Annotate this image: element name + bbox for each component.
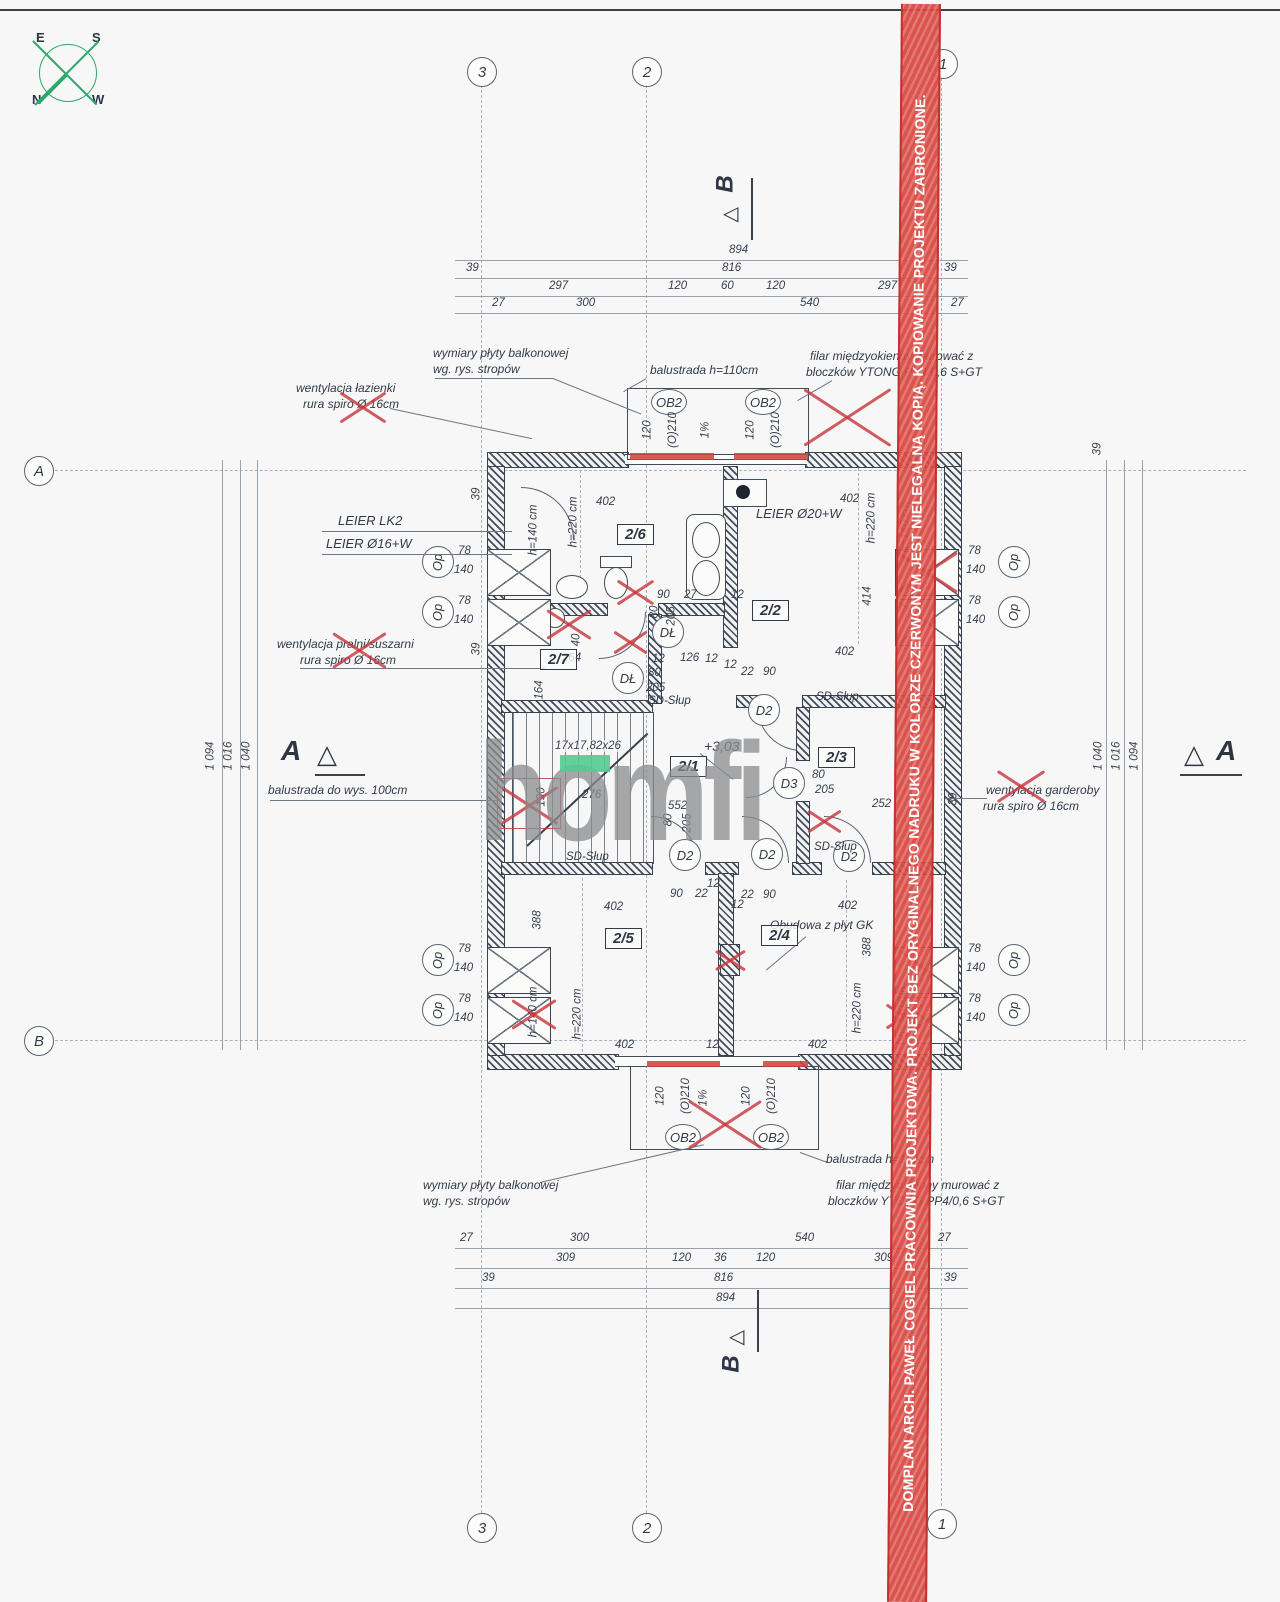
room-number: 2/6	[625, 526, 646, 543]
balcony-slope: 1%	[699, 422, 711, 439]
dim-line	[1124, 460, 1125, 1050]
op-label: Op	[1007, 603, 1022, 620]
op-bubble: Op	[422, 596, 454, 628]
door-type: D3	[781, 776, 798, 791]
dim-120: 120	[672, 1252, 691, 1264]
grid-b-label: B	[34, 1033, 44, 1050]
room-label-2-6: 2/6	[617, 524, 654, 545]
wall-bottom-left	[487, 1054, 619, 1070]
sd-slup-label: SD-Słup	[816, 690, 859, 705]
dim-h220: h=220 cm	[567, 497, 579, 548]
dim-39: 39	[470, 643, 482, 656]
red-x-vent-wardrobe	[995, 762, 1047, 808]
op-bubble: Op	[998, 944, 1030, 976]
page-edge-line	[0, 9, 1280, 11]
win-dim-78: 78	[968, 943, 981, 955]
leader	[540, 1144, 704, 1183]
dim-205: 205	[666, 606, 678, 625]
section-triangle-b-bottom: ◁	[729, 1324, 744, 1348]
ann-balcony-plate-top-1: wymiary płyty balkonowej	[433, 346, 568, 362]
room-label-2-3: 2/3	[818, 747, 855, 768]
dim-402: 402	[835, 646, 854, 658]
red-x-balcony-bottom	[685, 1076, 765, 1170]
room-number: 2/4	[769, 927, 790, 944]
dim-39: 39	[466, 262, 479, 274]
win-dim-140: 140	[454, 962, 473, 974]
section-letter-a-right: A	[1216, 735, 1236, 767]
red-x-balcony-top	[800, 385, 895, 447]
bathtub-basin	[692, 522, 720, 558]
grid-axis-b	[50, 1040, 1246, 1041]
balcony-dim-210: (O)210	[766, 1078, 778, 1114]
dim-894: 894	[729, 244, 748, 256]
dim-12: 12	[707, 878, 720, 890]
grid-bubble-3-bottom: 3	[467, 1513, 497, 1543]
grid-bubble-2-bottom: 2	[632, 1513, 662, 1543]
win-dim-78: 78	[458, 993, 471, 1005]
homfi-logo-text: homfi	[478, 713, 762, 870]
dim-402: 402	[615, 1039, 634, 1051]
op-bubble: Op	[422, 546, 454, 578]
dim-line	[257, 460, 258, 1050]
room-label-2-4: 2/4	[761, 925, 798, 946]
win-dim-78: 78	[968, 545, 981, 557]
grid-bubble-3-top: 3	[467, 57, 497, 87]
dim-39: 39	[470, 488, 482, 501]
section-line-b-top	[751, 178, 753, 240]
op-bubble: Op	[998, 596, 1030, 628]
win-dim-78: 78	[458, 545, 471, 557]
dim-388: 388	[532, 910, 544, 929]
win-dim-140: 140	[966, 614, 985, 626]
grid-bubble-b: B	[24, 1026, 54, 1056]
ob2-label: OB2	[750, 395, 776, 410]
dim-297: 297	[549, 280, 568, 292]
win-dim-140: 140	[966, 1012, 985, 1024]
balcony-dim-210: (O)210	[770, 412, 782, 448]
ann-balcony-plate-bottom-1: wymiary płyty balkonowej	[423, 1178, 558, 1194]
homfi-logo-roof-icon	[560, 755, 610, 772]
red-x-sink	[545, 605, 593, 641]
dim-12: 12	[724, 659, 737, 671]
win-dim-78: 78	[968, 595, 981, 607]
sd-slup-label: SD-Słup	[648, 694, 691, 709]
homfi-logo: homfi	[478, 722, 762, 862]
leader	[270, 800, 500, 801]
dim-205: 205	[646, 682, 665, 694]
dim-120: 120	[756, 1252, 775, 1264]
ann-leier-lk2: LEIER LK2	[338, 513, 402, 530]
leader	[390, 408, 532, 439]
dim-164: 164	[534, 680, 546, 699]
dim-388: 388	[862, 937, 874, 956]
grid-a-label: A	[34, 463, 44, 480]
ann-filar-top-1: filar międzyokienny murować z	[810, 349, 973, 365]
red-x-fixture-2	[612, 628, 648, 654]
dim-402: 402	[838, 900, 857, 912]
room-label-2-7: 2/7	[540, 649, 577, 670]
op-label: Op	[431, 553, 446, 570]
balcony-dim-120: 120	[642, 420, 654, 439]
section-triangle-a-left: △	[317, 740, 337, 770]
dim-1094: 1 094	[1128, 742, 1140, 771]
dim-line	[1106, 460, 1107, 1050]
grid-bubble-2-top: 2	[632, 57, 662, 87]
win-dim-140: 140	[454, 1012, 473, 1024]
grid-bubble-1-bottom: 1	[927, 1509, 957, 1539]
dim-12: 12	[705, 653, 718, 665]
red-x-gk-pillar	[714, 940, 746, 978]
window	[487, 599, 551, 646]
dim-402: 402	[808, 1039, 827, 1051]
dim-90: 90	[763, 889, 776, 901]
dim-line	[1142, 460, 1143, 1050]
op-label: Op	[431, 951, 446, 968]
leader	[800, 1152, 829, 1163]
dim-309: 309	[556, 1252, 575, 1264]
dim-line	[455, 278, 968, 279]
door-type: DŁ	[660, 625, 677, 640]
leader	[322, 531, 512, 532]
window	[487, 549, 551, 596]
dim-90: 90	[670, 888, 683, 900]
red-x-fixture-1	[616, 576, 656, 606]
red-x-vent-laundry	[330, 625, 388, 673]
dim-39: 39	[944, 1272, 957, 1284]
ann-balcony-plate-bottom-2: wg. rys. stropów	[423, 1194, 510, 1210]
section-line-b-bottom	[757, 1290, 759, 1352]
room-label-2-5: 2/5	[605, 928, 642, 949]
dim-39: 39	[947, 793, 959, 806]
dim-h220: h=220 cm	[851, 983, 863, 1034]
grid-bubble-a: A	[24, 456, 54, 486]
win-dim-140: 140	[454, 564, 473, 576]
op-bubble: Op	[422, 994, 454, 1026]
door-bubble-dl: DŁ	[612, 662, 644, 694]
red-x-sd-slup	[806, 806, 842, 834]
win-dim-140: 140	[966, 962, 985, 974]
grid-2-label: 2	[643, 64, 651, 81]
ob2-label: OB2	[656, 395, 682, 410]
balcony-dim-120: 120	[745, 420, 757, 439]
dim-h220: h=220 cm	[865, 493, 877, 544]
ann-balustrade-top: balustrada h=110cm	[650, 363, 758, 379]
op-label: Op	[431, 603, 446, 620]
dim-27: 27	[951, 297, 964, 309]
room-number: 2/2	[760, 602, 781, 619]
dim-12: 12	[652, 653, 665, 665]
dim-1094: 1 094	[204, 742, 216, 771]
dim-816: 816	[722, 262, 741, 274]
dim-402: 402	[604, 901, 623, 913]
dim-39: 39	[944, 262, 957, 274]
room-number: 2/5	[613, 930, 634, 947]
wall-top-right	[805, 452, 962, 468]
door-bubble-d3: D3	[773, 767, 805, 799]
section-letter-b-top: B	[712, 175, 740, 192]
red-highlight-bar	[647, 1061, 720, 1067]
section-underline-a-right	[1180, 774, 1242, 776]
ann-balcony-plate-top-2: wg. rys. stropów	[433, 362, 520, 378]
dim-12: 12	[731, 589, 744, 601]
grid-1-label: 1	[938, 1516, 946, 1533]
win-dim-140: 140	[966, 564, 985, 576]
copyright-watermark-text: DOMPLAN ARCH. PAWEŁ COGIEL PRACOWNIA PRO…	[900, 94, 928, 1512]
dim-22: 22	[695, 888, 708, 900]
win-dim-78: 78	[458, 943, 471, 955]
dim-300: 300	[576, 297, 595, 309]
washbasin	[556, 575, 588, 599]
door-type: DŁ	[620, 671, 637, 686]
dim-22: 22	[741, 666, 754, 678]
dim-120: 120	[668, 280, 687, 292]
dim-816: 816	[714, 1272, 733, 1284]
dim-90: 90	[657, 589, 670, 601]
op-label: Op	[1007, 553, 1022, 570]
dim-1016: 1 016	[222, 742, 234, 771]
room-number: 2/3	[826, 749, 847, 766]
dim-27: 27	[684, 589, 697, 601]
section-triangle-b-top: ◁	[723, 201, 738, 225]
wall-top-left	[487, 452, 629, 468]
dim-414: 414	[862, 586, 874, 605]
compass-rose-icon: E S N W	[20, 20, 140, 130]
op-bubble: Op	[998, 994, 1030, 1026]
balcony-dim-120: 120	[655, 1086, 667, 1105]
dim-1040: 1 040	[1092, 742, 1104, 771]
balcony-dim-210: (O)210	[667, 412, 679, 448]
dim-12: 12	[731, 899, 744, 911]
grid-axis-1	[941, 78, 942, 1506]
op-bubble: Op	[998, 546, 1030, 578]
dim-h140: h=140 cm	[527, 505, 539, 556]
compass-e-label: E	[36, 30, 45, 45]
win-dim-140: 140	[454, 614, 473, 626]
dim-540: 540	[795, 1232, 814, 1244]
section-underline-a-left	[315, 774, 365, 776]
dim-27: 27	[938, 1232, 951, 1244]
wall-bottom-right	[798, 1054, 962, 1070]
win-dim-78: 78	[968, 993, 981, 1005]
win-dim-78: 78	[458, 595, 471, 607]
section-letter-a-left: A	[281, 735, 301, 767]
dim-39: 39	[482, 1272, 495, 1284]
dim-540: 540	[800, 297, 819, 309]
dim-line	[455, 313, 968, 314]
dim-1040: 1 040	[240, 742, 252, 771]
dim-80: 80	[648, 667, 661, 679]
ann-filar-top-2: bloczków YTONG PP4/0,6 S+GT	[806, 365, 982, 381]
op-label: Op	[1007, 951, 1022, 968]
dim-39: 39	[1091, 443, 1103, 456]
ann-balustrade-100: balustrada do wys. 100cm	[268, 783, 407, 799]
section-letter-b-bottom: B	[718, 1355, 746, 1372]
grid-3-label: 3	[478, 1520, 486, 1537]
floor-plan-scan: E S N W 3 2 1 3 2 1 A B 894 39 816 39 29…	[0, 0, 1280, 1602]
dim-126: 126	[680, 652, 699, 664]
dim-402: 402	[840, 493, 859, 505]
dim-h220: h=220 cm	[571, 989, 583, 1040]
wall-stairs-top	[501, 700, 653, 713]
section-triangle-a-right: △	[1184, 740, 1204, 770]
pipe-dot	[736, 485, 750, 499]
dim-300: 300	[570, 1232, 589, 1244]
op-label: Op	[431, 1001, 446, 1018]
red-highlight-bar	[630, 453, 714, 460]
leader	[322, 554, 512, 555]
dim-36: 36	[714, 1252, 727, 1264]
dim-12: 12	[706, 1039, 719, 1051]
red-highlight-bar	[763, 1061, 808, 1067]
grid-2-label: 2	[643, 1520, 651, 1537]
dim-894: 894	[716, 1292, 735, 1304]
dim-252: 252	[872, 798, 891, 810]
red-x-vent-bath	[338, 385, 388, 427]
grid-3-label: 3	[478, 64, 486, 81]
dim-120: 120	[766, 280, 785, 292]
dim-205: 205	[815, 784, 834, 796]
red-x-window-left-bottom	[510, 988, 558, 1038]
dim-80: 80	[812, 769, 825, 781]
leader	[435, 378, 553, 379]
wall-23-left-a	[796, 707, 810, 761]
dim-90: 90	[763, 666, 776, 678]
dim-80: 80	[648, 606, 660, 619]
dim-line	[455, 296, 968, 297]
dim-402: 402	[596, 496, 615, 508]
dim-297: 297	[878, 280, 897, 292]
room-number: 2/7	[548, 651, 569, 668]
copyright-watermark-strip: DOMPLAN ARCH. PAWEŁ COGIEL PRACOWNIA PRO…	[887, 4, 941, 1602]
room-label-2-2: 2/2	[752, 600, 789, 621]
dim-1016: 1 016	[1110, 742, 1122, 771]
window	[487, 947, 551, 994]
grid-axis-a	[50, 470, 1246, 471]
ann-leier-o16: LEIER Ø16+W	[326, 536, 412, 553]
sd-slup-label: SD-Słup	[814, 840, 857, 855]
red-highlight-bar	[734, 453, 808, 460]
dim-27: 27	[492, 297, 505, 309]
dim-60: 60	[721, 280, 734, 292]
dim-27: 27	[460, 1232, 473, 1244]
op-bubble: Op	[422, 944, 454, 976]
op-label: Op	[1007, 1001, 1022, 1018]
ann-leier-o20: LEIER Ø20+W	[756, 506, 842, 523]
dim-line	[455, 260, 968, 261]
